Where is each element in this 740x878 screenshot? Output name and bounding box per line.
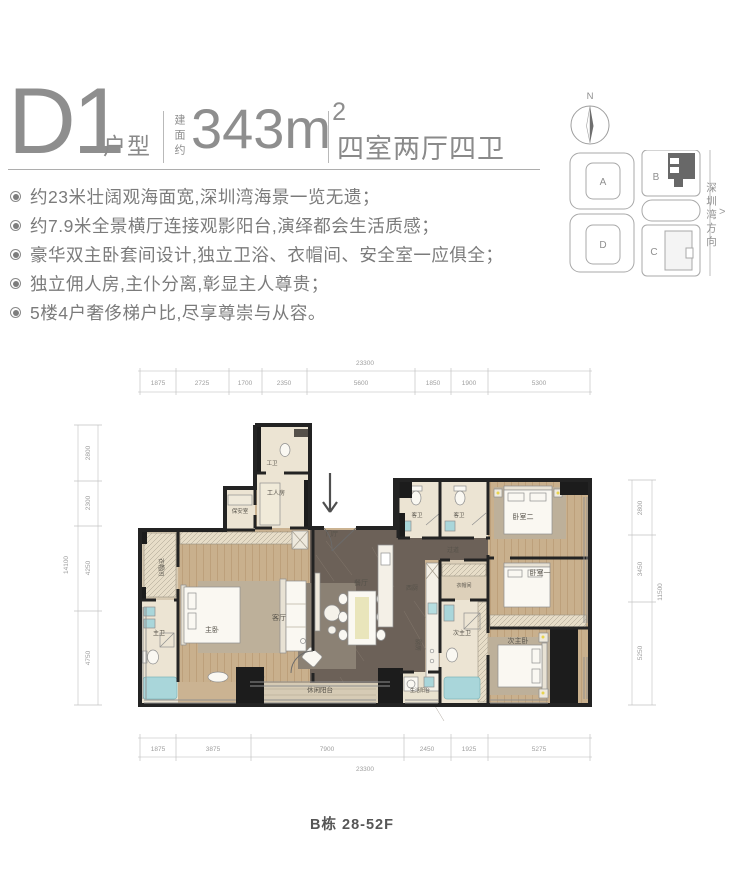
block-c-label: C <box>650 247 657 258</box>
pillow <box>188 593 196 609</box>
toilet-tank <box>454 486 466 491</box>
pillow <box>532 669 540 683</box>
room-label: 客卫 <box>411 511 423 519</box>
area-number: 343m <box>191 97 331 160</box>
dimension-chain-bottom: 1875 3875 7900 2450 1925 5275 23300 <box>138 734 592 773</box>
area-prefix: 建面约 <box>171 114 187 166</box>
side-table <box>328 626 336 634</box>
worker-bath-cabinet <box>294 429 308 437</box>
bench <box>208 672 228 682</box>
lamp <box>557 492 560 495</box>
block-b-annex <box>674 179 683 187</box>
dim-seg: 1900 <box>462 380 477 387</box>
dim-seg: 5275 <box>532 746 547 753</box>
master-bedroom-closet <box>180 532 305 544</box>
hallway-floor <box>395 538 488 560</box>
pillow <box>508 493 524 501</box>
room-label: 次主卫 <box>453 629 471 637</box>
dim-seg: 2800 <box>637 500 644 515</box>
pillow <box>188 613 196 629</box>
tv-console <box>315 573 320 631</box>
chair <box>339 612 348 623</box>
dim-seg: 5300 <box>532 380 547 387</box>
dim-seg: 1875 <box>151 746 166 753</box>
lamp <box>542 636 545 639</box>
room-label: 门厅 <box>326 530 338 538</box>
dim-seg: 4750 <box>85 650 92 665</box>
chair <box>377 630 386 641</box>
room-label: 休闲阳台 <box>307 685 333 694</box>
bathtub <box>143 677 177 699</box>
headboard <box>542 643 547 691</box>
room-label: 生活阳台 <box>410 687 430 694</box>
room-label: 主卫 <box>153 629 165 637</box>
toilet <box>447 648 458 662</box>
lamp <box>542 692 545 695</box>
bathtub <box>444 677 480 699</box>
room-label: 客卫 <box>453 511 465 519</box>
headboard <box>504 563 550 567</box>
column <box>378 668 403 705</box>
site-plan: A B D C <box>566 150 716 283</box>
dim-seg: 3875 <box>206 746 221 753</box>
road-shape <box>642 200 700 221</box>
table-runner <box>355 597 369 639</box>
dim-seg: 5600 <box>354 380 369 387</box>
cloakroom2-wardrobe <box>442 564 486 576</box>
toilet <box>148 650 159 664</box>
worker-bed <box>260 483 280 525</box>
layout-desc: 四室两厅四卫 <box>337 127 505 166</box>
dimension-chain-top: 23300 1875 2725 1700 2350 5600 1850 1900… <box>138 360 592 395</box>
lamp <box>497 492 500 495</box>
stove-burner <box>430 659 434 663</box>
column <box>560 481 588 495</box>
bullet-icon <box>10 307 21 318</box>
toilet <box>280 444 290 457</box>
dim-total: 11500 <box>657 583 664 601</box>
unit-type-label: 户型 <box>103 127 151 161</box>
header-rule <box>8 169 540 170</box>
utility-sink <box>424 677 434 687</box>
pillow <box>532 649 540 663</box>
area-value: 343m2 <box>191 100 346 157</box>
dim-seg: 7900 <box>320 746 335 753</box>
dim-seg: 5250 <box>637 645 644 660</box>
dim-seg: 1925 <box>462 746 477 753</box>
dim-total: 23300 <box>356 360 374 367</box>
dim-seg: 1875 <box>151 380 166 387</box>
security-desk <box>228 495 252 505</box>
island-sink <box>381 553 390 565</box>
block-c-notch <box>686 248 693 258</box>
dim-total: 23300 <box>356 766 374 773</box>
room-label: 厨房 <box>414 639 422 651</box>
room-label: 主卧 <box>205 625 219 634</box>
vanity-sink <box>444 605 454 621</box>
dimension-chain-left: 2800 2300 4250 4750 14100 <box>63 425 102 705</box>
site-plan-diagram: A B D C <box>566 150 716 278</box>
block-b-notch <box>670 158 679 164</box>
dim-seg: 2300 <box>85 495 92 510</box>
toilet <box>455 491 465 505</box>
headboard <box>504 486 552 490</box>
feature-text: 约23米壮阔观海面宽,深圳湾海景一览无遗； <box>30 184 380 209</box>
feature-text: 豪华双主卧套间设计,独立卫浴、衣帽间、安全室一应俱全； <box>30 242 503 267</box>
floor-plan-drawing: 23300 1875 2725 1700 2350 5600 1850 1900… <box>60 355 680 780</box>
room-label: 餐厅 <box>354 578 368 587</box>
floor-lamp <box>301 639 306 644</box>
dim-seg: 2450 <box>420 746 435 753</box>
chair <box>339 630 348 641</box>
compass-icon: N <box>567 88 613 150</box>
bullet-icon <box>10 278 21 289</box>
block-b-label: B <box>653 172 660 183</box>
bedroom1-closet <box>490 615 586 627</box>
pillow <box>530 493 546 501</box>
dimension-chain-right: 2800 3450 5250 11500 <box>628 480 664 705</box>
feature-text: 约7.9米全景横厅连接观影阳台,演绎都会生活质感； <box>30 213 439 238</box>
feature-item: 约7.9米全景横厅连接观影阳台,演绎都会生活质感； <box>10 211 503 240</box>
coffee-table <box>324 605 340 621</box>
north-label: N <box>587 91 594 102</box>
room-label: 保安室 <box>232 507 249 515</box>
building-label: B栋 28-52F <box>282 813 422 834</box>
feature-list: 约23米壮阔观海面宽,深圳湾海景一览无遗； 约7.9米全景横厅连接观影阳台,演绎… <box>10 182 503 327</box>
dim-seg: 2725 <box>195 380 210 387</box>
feature-item: 5楼4户奢侈梯户比,尽享尊崇与从容。 <box>10 298 503 327</box>
dim-seg: 2800 <box>85 445 92 460</box>
area-sup: 2 <box>332 98 346 126</box>
room-label: 衣帽间 <box>456 582 471 589</box>
bay-direction-label: 深圳湾方向 <box>704 182 719 250</box>
chair <box>339 594 348 605</box>
feature-item: 豪华双主卧套间设计,独立卫浴、衣帽间、安全室一应俱全； <box>10 240 503 269</box>
block-b-highlight-building <box>668 153 695 179</box>
block-a-label: A <box>600 177 607 188</box>
stove-burner <box>430 649 434 653</box>
feature-item: 约23米壮阔观海面宽,深圳湾海景一览无遗； <box>10 182 503 211</box>
chevron-right-icon: > <box>719 206 725 218</box>
page: D1 户型 建面约 343m2 四室两厅四卫 约23米壮阔观海面宽,深圳湾海景一… <box>0 0 740 878</box>
room-label: 卧室一 <box>530 568 551 577</box>
header-divider <box>328 111 329 163</box>
bullet-icon <box>10 220 21 231</box>
room-label: 衣帽间 <box>157 558 165 576</box>
header-divider <box>163 111 164 163</box>
room-label: 工人房 <box>267 489 285 497</box>
pillow <box>508 570 522 577</box>
column <box>550 627 578 703</box>
room-label: 工卫 <box>266 460 278 467</box>
dim-seg: 1700 <box>238 380 253 387</box>
entry-arrow-icon <box>323 473 337 512</box>
feature-text: 5楼4户奢侈梯户比,尽享尊崇与从容。 <box>30 300 326 325</box>
room-label: 客厅 <box>272 613 286 622</box>
dim-seg: 3450 <box>637 561 644 576</box>
room-label: 次主卧 <box>508 636 529 645</box>
dim-total: 14100 <box>63 556 70 574</box>
feature-text: 独立佣人房,主仆分离,彰显主人尊贵； <box>30 271 329 296</box>
compass: N <box>567 88 613 155</box>
dim-seg: 2350 <box>277 380 292 387</box>
bullet-icon <box>10 249 21 260</box>
feature-item: 独立佣人房,主仆分离,彰显主人尊贵； <box>10 269 503 298</box>
room-label: 过道 <box>447 546 459 554</box>
dim-seg: 1850 <box>426 380 441 387</box>
block-d-label: D <box>599 240 606 251</box>
toilet <box>411 491 421 505</box>
room-label: 卧室二 <box>513 512 534 521</box>
block-b-notch <box>670 167 679 173</box>
room-label: 西厨 <box>406 585 418 592</box>
dim-seg: 4250 <box>85 560 92 575</box>
kitchen-sink <box>428 603 437 614</box>
floor-plan: 23300 1875 2725 1700 2350 5600 1850 1900… <box>60 355 680 785</box>
bath-sink <box>445 521 455 531</box>
bullet-icon <box>10 191 21 202</box>
